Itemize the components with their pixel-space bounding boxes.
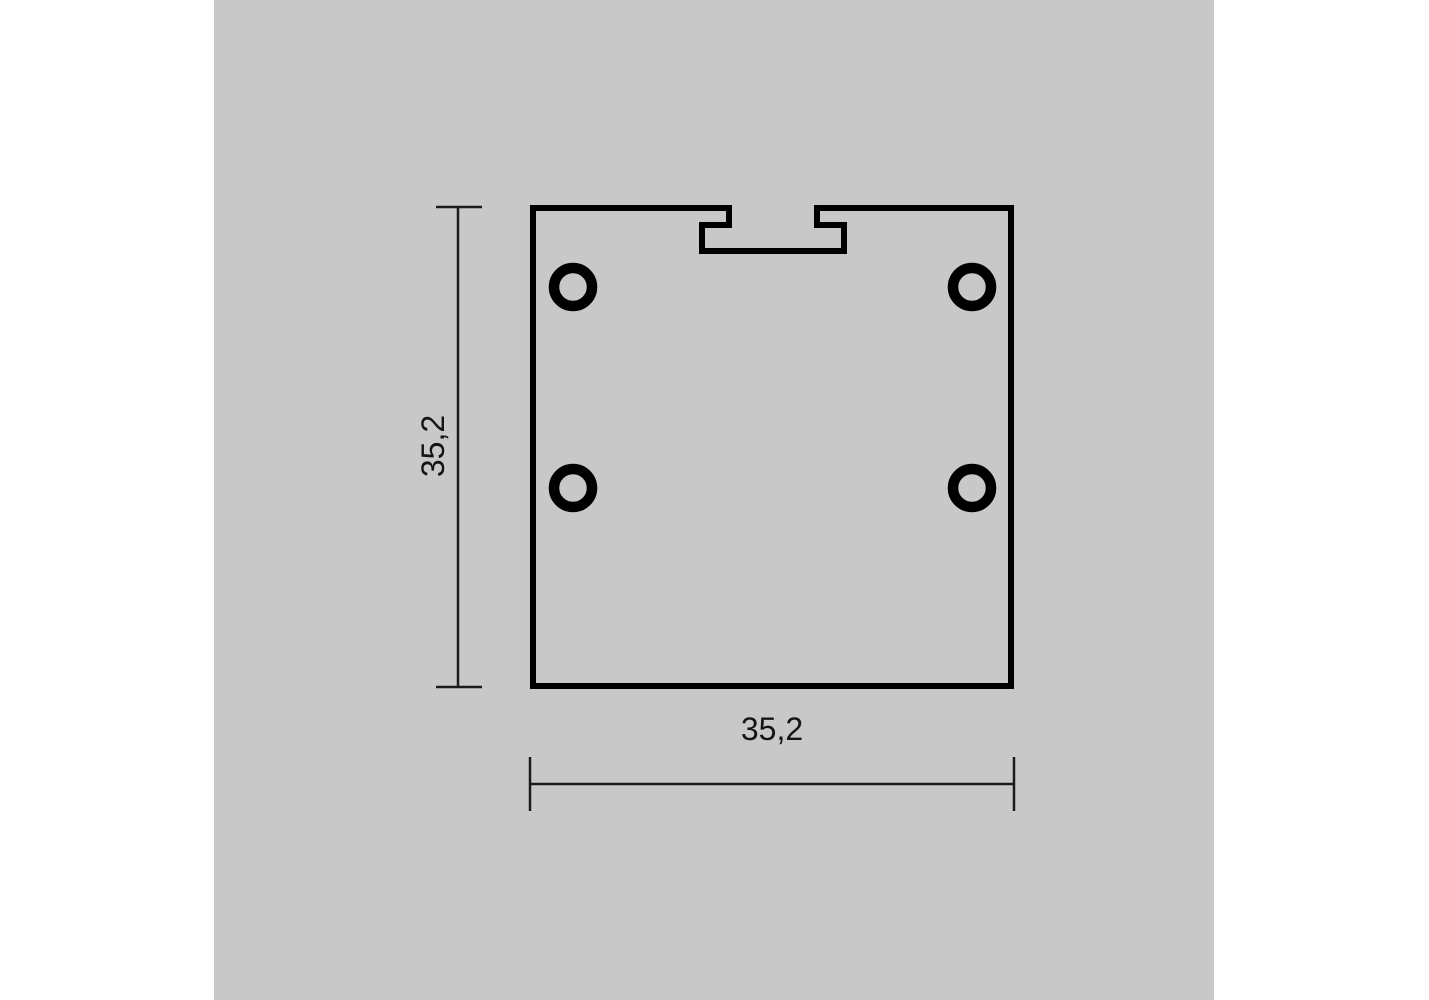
hole-top-left [554, 268, 592, 306]
drawing-panel: 35,2 35,2 [214, 0, 1214, 1000]
technical-drawing: 35,2 35,2 [214, 0, 1214, 1000]
height-dimension-label: 35,2 [415, 415, 451, 477]
profile-outline [533, 208, 1011, 686]
width-dimension-label: 35,2 [741, 711, 803, 747]
hole-bottom-right [953, 469, 991, 507]
hole-top-right [953, 268, 991, 306]
width-dimension [530, 757, 1014, 811]
hole-bottom-left [554, 469, 592, 507]
